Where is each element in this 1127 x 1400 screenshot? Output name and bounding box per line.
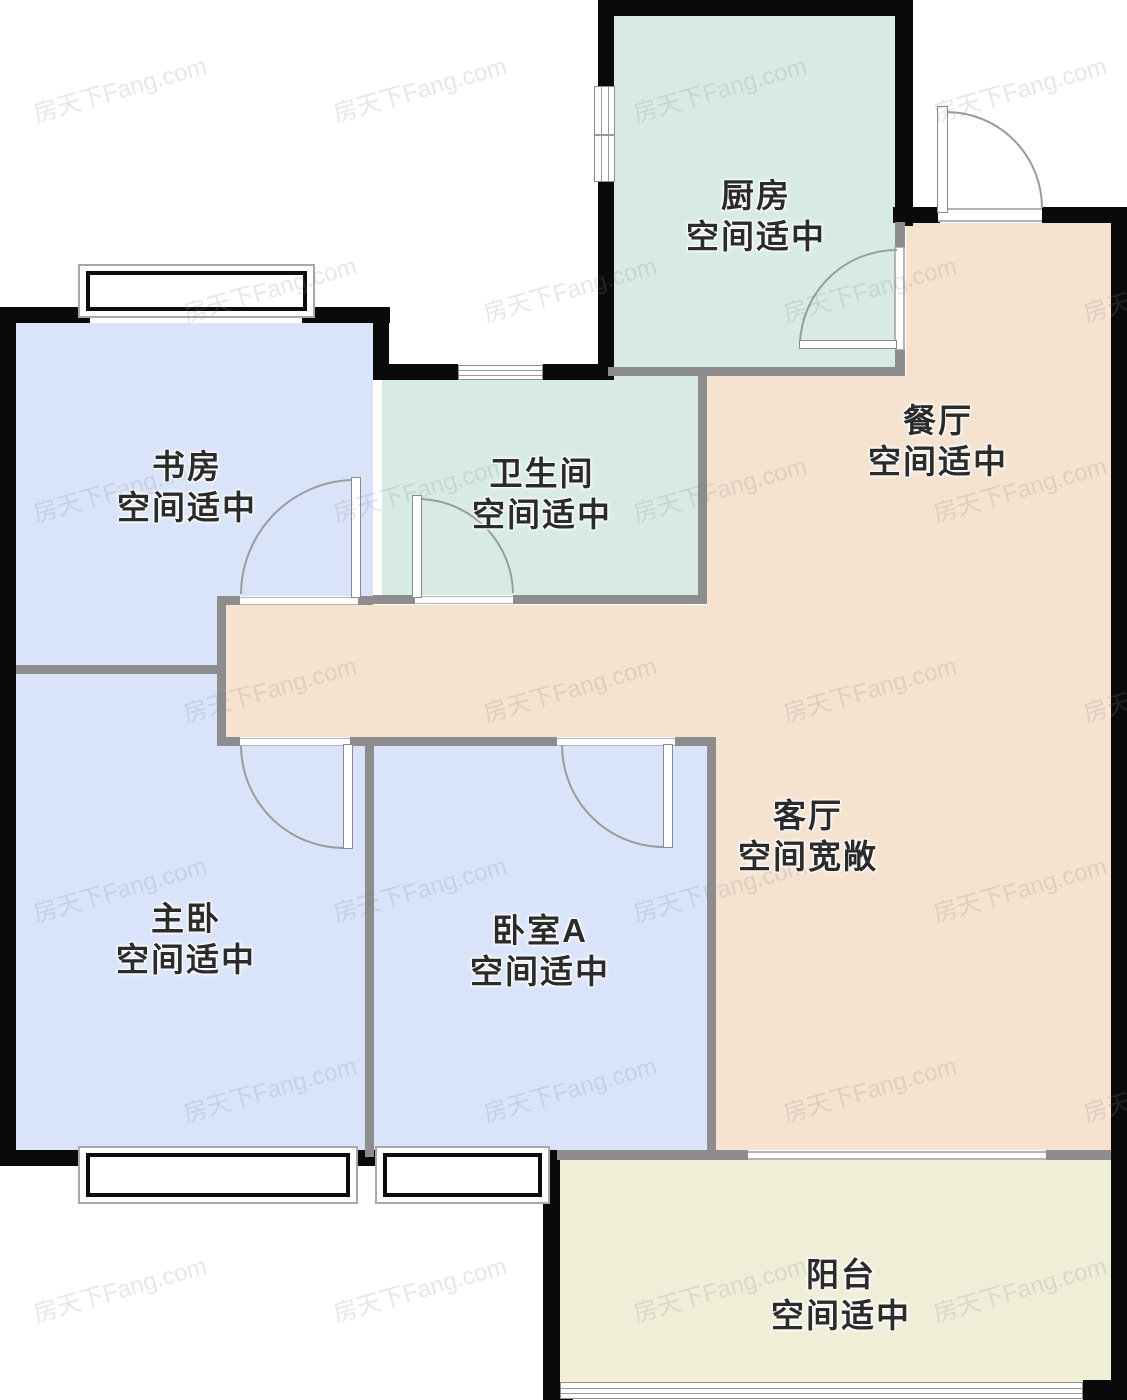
room-name: 阳台: [771, 1254, 911, 1295]
balcony-sliding-opening: [748, 1151, 1046, 1160]
wall-interior: [217, 737, 240, 746]
room-living-floor: [707, 376, 1111, 1150]
room-label-bathroom: 卫生间空间适中: [472, 453, 612, 535]
watermark: 房天下Fang.com: [29, 46, 210, 129]
master-door-threshold: [240, 738, 350, 746]
wall-exterior: [598, 0, 913, 16]
room-name: 主卧: [116, 898, 256, 939]
bay-window-frame: [383, 1153, 542, 1197]
room-note: 空间适中: [470, 951, 610, 992]
room-study-floor-ext: [16, 596, 217, 667]
room-note: 空间适中: [686, 216, 826, 257]
room-name: 卫生间: [472, 453, 612, 494]
kitchen-door-leaf: [799, 340, 897, 349]
watermark: 房天下Fang.com: [329, 46, 510, 129]
bathroom-door-threshold: [415, 596, 513, 604]
room-label-living-room: 客厅空间宽敞: [738, 795, 878, 877]
room-dining-floor: [906, 223, 1111, 376]
bay-window-frame: [86, 1153, 350, 1197]
bedroom-a-door-threshold: [557, 738, 675, 746]
room-name: 书房: [117, 446, 257, 487]
wall-exterior: [373, 364, 458, 380]
bathroom-window: [458, 365, 543, 380]
wall-interior: [513, 595, 707, 604]
study-door-threshold: [240, 597, 358, 605]
study-door-leaf: [351, 477, 361, 598]
room-note: 空间适中: [472, 494, 612, 535]
wall-exterior: [543, 364, 614, 380]
wall-exterior: [1111, 207, 1127, 1400]
wall-exterior: [0, 1150, 90, 1166]
wall-exterior: [1083, 1380, 1127, 1400]
room-label-balcony: 阳台空间适中: [771, 1254, 911, 1336]
bathroom-door-leaf: [412, 495, 422, 598]
room-master-floor-ext: [16, 674, 217, 746]
room-name: 卧室A: [470, 910, 610, 951]
room-name: 餐厅: [868, 400, 1008, 441]
watermark: 房天下Fang.com: [29, 1246, 210, 1329]
bedroom-a-bay-window: [375, 1146, 550, 1204]
room-label-dining: 餐厅空间适中: [868, 400, 1008, 482]
master-bay-window: [78, 1146, 358, 1204]
wall-interior: [365, 737, 374, 1157]
master-door-leaf: [343, 744, 353, 849]
window-mullion: [561, 1388, 1082, 1389]
room-label-bedroom-a: 卧室A空间适中: [470, 910, 610, 992]
wall-interior: [16, 665, 226, 674]
room-name: 厨房: [686, 175, 826, 216]
bedroom-a-door-leaf: [663, 744, 673, 848]
wall-exterior: [598, 0, 614, 88]
floor-plan: 房天下Fang.com房天下Fang.com房天下Fang.com房天下Fang…: [0, 0, 1127, 1400]
wall-interior: [707, 737, 716, 1157]
wall-interior: [698, 367, 707, 600]
wall-interior: [557, 1150, 748, 1160]
entry-door-threshold: [938, 208, 1042, 222]
window-mullion: [459, 370, 542, 371]
window-mullion: [595, 134, 614, 136]
room-note: 空间适中: [116, 939, 256, 980]
hallway-floor: [226, 605, 716, 737]
wall-interior: [373, 595, 415, 604]
wall-exterior: [895, 0, 913, 226]
window-mullion: [561, 1393, 1082, 1394]
room-label-master-bedroom: 主卧空间适中: [116, 898, 256, 980]
wall-interior: [895, 350, 905, 370]
wall-exterior: [598, 180, 614, 370]
wall-interior: [350, 737, 557, 746]
entry-door-leaf: [937, 106, 948, 213]
kitchen-window: [594, 86, 615, 182]
entry-door-arc: [948, 112, 1042, 208]
kitchen-door-threshold: [894, 247, 905, 350]
wall-interior: [1046, 1150, 1111, 1160]
wall-interior: [608, 367, 905, 376]
watermark: 房天下Fang.com: [329, 1246, 510, 1329]
room-note: 空间适中: [771, 1295, 911, 1336]
balcony-window: [560, 1382, 1083, 1399]
wall-interior: [895, 222, 905, 247]
wall-exterior: [893, 207, 940, 223]
room-note: 空间适中: [868, 441, 1008, 482]
room-name: 客厅: [738, 795, 878, 836]
room-label-kitchen: 厨房空间适中: [686, 175, 826, 257]
bay-window-frame: [86, 271, 307, 311]
study-bay-window: [78, 264, 315, 318]
window-mullion: [459, 375, 542, 376]
room-note: 空间适中: [117, 487, 257, 528]
room-label-study: 书房空间适中: [117, 446, 257, 528]
wall-exterior: [0, 307, 16, 1166]
room-note: 空间宽敞: [738, 836, 878, 877]
watermark: 房天下Fang.com: [929, 46, 1110, 129]
